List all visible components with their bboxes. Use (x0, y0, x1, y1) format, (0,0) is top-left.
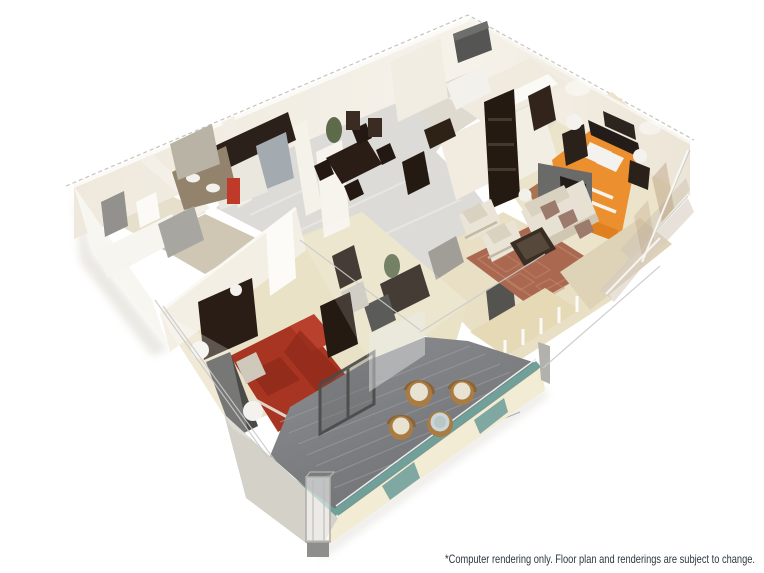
svg-text:*Computer rendering only. Floo: *Computer rendering only. Floor plan and… (445, 552, 755, 566)
